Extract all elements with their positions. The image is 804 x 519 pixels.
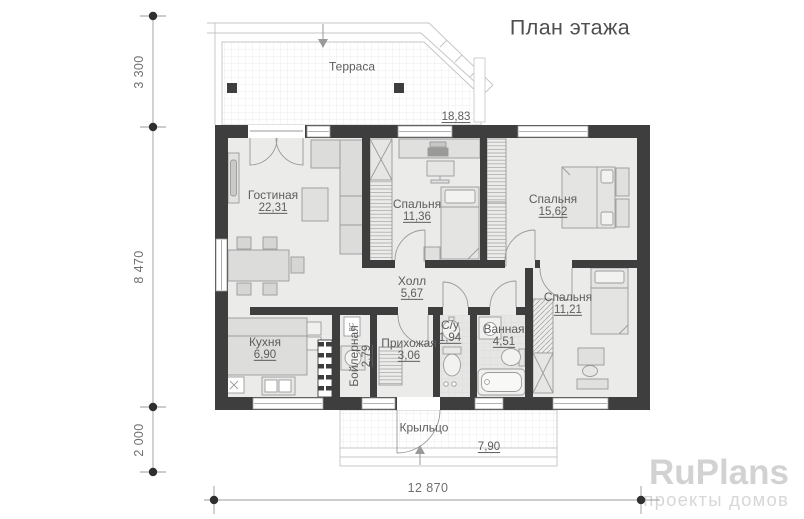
porch-step bbox=[340, 448, 557, 457]
french-door-opening bbox=[248, 125, 305, 138]
room-name: Крыльцо bbox=[400, 420, 449, 434]
room-area: 6,90 bbox=[249, 349, 281, 362]
pillow bbox=[595, 271, 624, 283]
room-name: Холл bbox=[398, 274, 426, 288]
wall-segment bbox=[480, 138, 487, 268]
wall-segment bbox=[425, 260, 505, 268]
room-area: 7,90 bbox=[478, 441, 500, 453]
dimension-marker bbox=[149, 123, 157, 131]
room-name: Кухня bbox=[249, 335, 281, 349]
room-name: Прихожая bbox=[381, 336, 437, 350]
room-area: 18,83 bbox=[442, 111, 471, 123]
room-label-hall: Холл 5,67 bbox=[398, 275, 426, 301]
room-name: С/у bbox=[441, 318, 459, 332]
pillow bbox=[445, 190, 475, 203]
floor-plan-page: RuPlans проекты домов bbox=[0, 0, 804, 519]
wall-segment bbox=[377, 307, 398, 315]
dimension-bottom-width: 12 870 bbox=[408, 481, 449, 495]
dimension-left-middle: 8 470 bbox=[132, 250, 146, 283]
room-name: Терраса bbox=[329, 59, 375, 73]
room-label-terrace: Терраса bbox=[329, 60, 375, 73]
nightstand bbox=[424, 247, 440, 261]
room-name: Спальня bbox=[544, 290, 592, 304]
wc-floor-drain bbox=[444, 382, 448, 386]
kitchen-sink-bowl bbox=[279, 380, 291, 392]
wall-segment bbox=[362, 138, 370, 268]
dimension-marker bbox=[637, 496, 645, 504]
room-label-hallway: Прихожая 3,06 bbox=[381, 337, 437, 363]
dimension-left-bottom: 2 000 bbox=[132, 423, 146, 456]
monitor bbox=[427, 161, 454, 176]
kitchen-appliance bbox=[307, 322, 321, 335]
dining-chair bbox=[291, 257, 304, 273]
room-label-bedroom2: Спальня 15,62 bbox=[529, 193, 577, 219]
pillow bbox=[601, 170, 613, 183]
printer bbox=[428, 148, 448, 156]
wall-segment bbox=[362, 260, 395, 268]
room-label-bedroom1: Спальня 11,36 bbox=[393, 198, 441, 224]
wc-toilet-bowl bbox=[444, 354, 461, 376]
room-name: Спальня bbox=[529, 192, 577, 206]
kitchen-sink-bowl bbox=[265, 380, 277, 392]
wall-segment bbox=[516, 307, 525, 315]
room-name: Бойлерная bbox=[347, 325, 361, 386]
room-label-wc: С/у 1,94 bbox=[439, 319, 461, 345]
wall-segment bbox=[250, 307, 377, 315]
dining-chair bbox=[237, 237, 251, 249]
room-label-living-room: Гостиная 22,31 bbox=[248, 189, 298, 215]
wall-right bbox=[637, 125, 650, 410]
coffee-table bbox=[302, 188, 328, 221]
monitor-base bbox=[431, 180, 449, 183]
wall-segment bbox=[525, 268, 533, 397]
vent-shaft bbox=[318, 340, 332, 397]
wc-floor-drain bbox=[452, 382, 456, 386]
wall-segment bbox=[535, 260, 540, 268]
dimension-left-top: 3 300 bbox=[132, 55, 146, 88]
room-area-porch: 7,90 bbox=[478, 440, 500, 454]
dining-chair bbox=[263, 283, 277, 295]
wall-segment bbox=[572, 260, 637, 268]
pillow bbox=[601, 212, 613, 225]
nightstand bbox=[616, 168, 629, 196]
entry-door-opening bbox=[397, 397, 440, 410]
room-area: 15,62 bbox=[529, 206, 577, 219]
dresser bbox=[578, 348, 604, 365]
wc-toilet-tank bbox=[443, 347, 461, 354]
room-name: Спальня bbox=[393, 197, 441, 211]
room-area: 11,36 bbox=[393, 211, 441, 224]
room-label-kitchen: Кухня 6,90 bbox=[249, 336, 281, 362]
dimension-marker bbox=[149, 468, 157, 476]
tv-screen bbox=[231, 160, 237, 196]
room-area: 3,06 bbox=[381, 350, 437, 363]
wall-segment bbox=[433, 307, 443, 315]
room-area-terrace: 18,83 bbox=[442, 110, 471, 124]
wall-segment bbox=[332, 315, 340, 397]
dining-chair bbox=[237, 283, 251, 295]
terrace-post bbox=[394, 83, 404, 93]
terrace-post bbox=[227, 83, 237, 93]
wardrobe-shelves bbox=[487, 139, 506, 266]
nightstand bbox=[616, 199, 629, 227]
room-label-boiler-room: Бойлерная 2,79 bbox=[348, 325, 374, 386]
room-label-bathroom: Ванная 4,51 bbox=[483, 323, 524, 349]
water-supply-label: ВС bbox=[348, 323, 355, 332]
bathtub-drain bbox=[485, 380, 490, 385]
room-label-bedroom3: Спальня 11,21 bbox=[544, 291, 592, 317]
porch bbox=[340, 410, 557, 466]
porch-step bbox=[340, 457, 557, 466]
room-area: 1,94 bbox=[439, 332, 461, 345]
laptop bbox=[430, 142, 446, 147]
room-area: 2,79 bbox=[361, 325, 374, 386]
room-area: 11,21 bbox=[544, 304, 592, 317]
console-table bbox=[577, 379, 608, 389]
dining-table bbox=[228, 250, 289, 281]
dimension-marker bbox=[210, 496, 218, 504]
dimension-marker bbox=[149, 12, 157, 20]
wardrobe-shelves bbox=[370, 180, 392, 266]
page-title: План этажа bbox=[510, 16, 630, 41]
wall-segment bbox=[470, 315, 477, 397]
chair bbox=[583, 366, 598, 377]
dimension-marker bbox=[149, 403, 157, 411]
room-area: 5,67 bbox=[398, 288, 426, 301]
terrace-pilaster bbox=[474, 58, 485, 122]
wall-segment bbox=[468, 307, 490, 315]
room-area: 4,51 bbox=[483, 336, 524, 349]
room-area: 22,31 bbox=[248, 202, 298, 215]
room-name: Гостиная bbox=[248, 188, 298, 202]
bath-toilet-bowl bbox=[502, 349, 521, 366]
dining-chair bbox=[263, 237, 277, 249]
room-label-porch: Крыльцо bbox=[400, 421, 449, 434]
floor-plan-drawing bbox=[0, 0, 804, 519]
room-name: Ванная bbox=[483, 322, 524, 336]
